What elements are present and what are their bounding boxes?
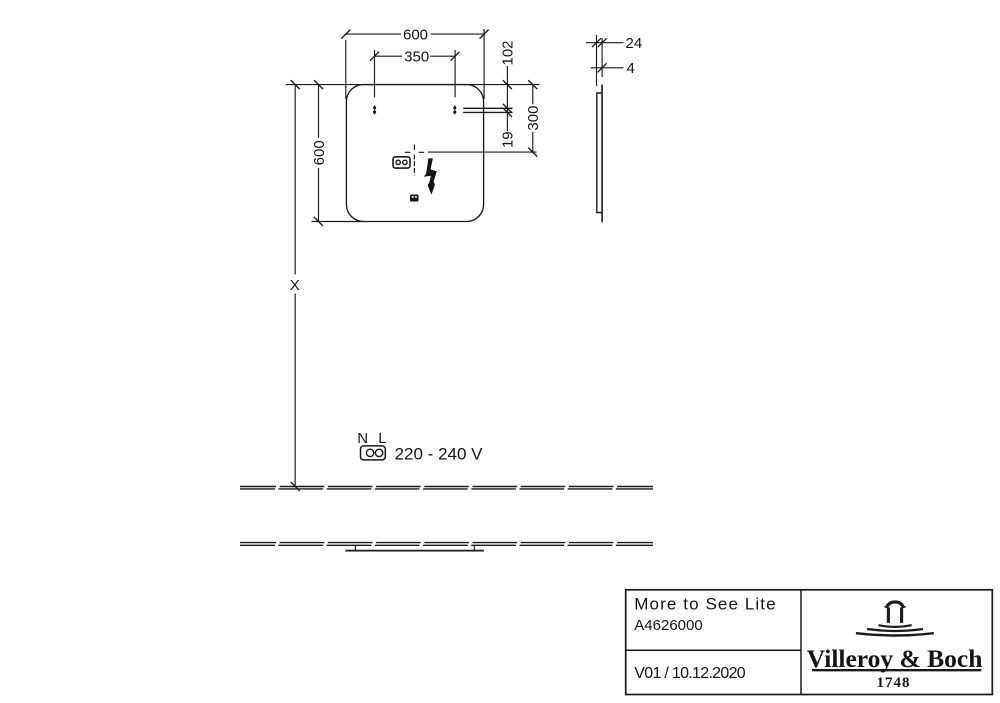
svg-text:19: 19 — [500, 131, 517, 148]
svg-text:600: 600 — [403, 27, 428, 44]
svg-text:N: N — [357, 430, 368, 447]
svg-text:600: 600 — [311, 140, 328, 165]
svg-text:1748: 1748 — [877, 675, 911, 691]
svg-text:Villeroy & Boch: Villeroy & Boch — [807, 644, 983, 673]
svg-text:A4626000: A4626000 — [634, 617, 702, 634]
svg-text:More to See Lite: More to See Lite — [634, 595, 776, 614]
svg-text:X: X — [290, 277, 300, 294]
svg-text:L: L — [378, 430, 386, 447]
svg-text:102: 102 — [500, 40, 517, 65]
svg-text:4: 4 — [627, 60, 635, 77]
svg-text:350: 350 — [404, 49, 429, 66]
svg-text:V01 / 10.12.2020: V01 / 10.12.2020 — [634, 665, 745, 682]
svg-text:300: 300 — [525, 106, 542, 131]
svg-text:24: 24 — [626, 35, 643, 52]
svg-text:220 - 240 V: 220 - 240 V — [395, 444, 484, 463]
